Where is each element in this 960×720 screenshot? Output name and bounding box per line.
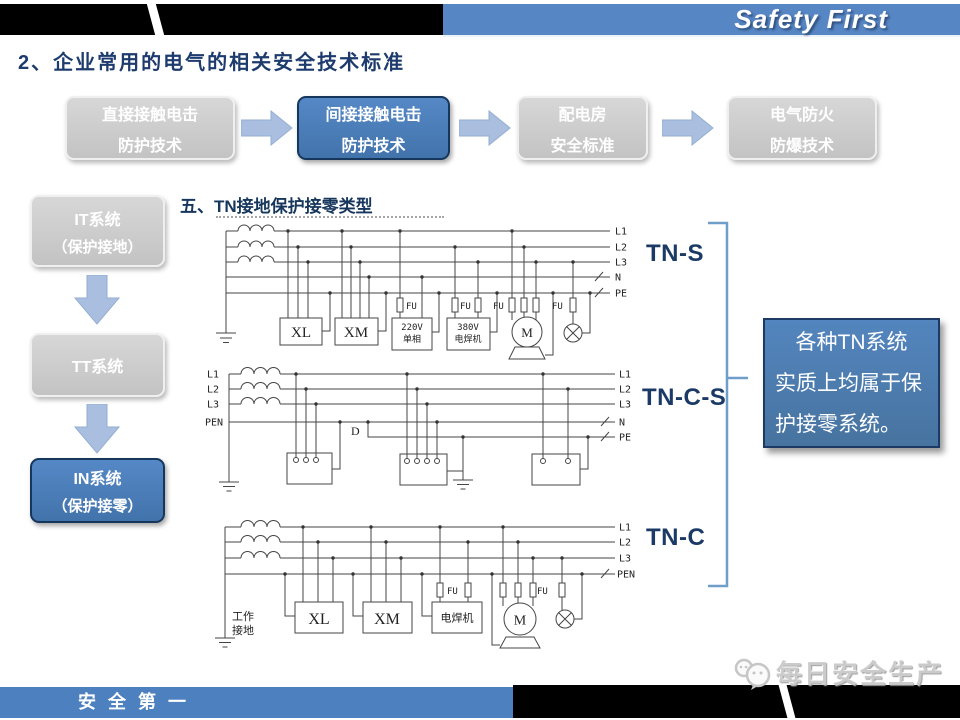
fuse-icon	[465, 583, 471, 597]
side-box-line: IT系统	[74, 206, 120, 230]
bus-label-l2-right: L2	[619, 385, 631, 396]
fuse-icon	[521, 298, 527, 312]
tns-labels: L1 L2 L3 N PE FU FU FU FU XL XM 220V 单相 …	[291, 227, 627, 346]
bus-label-pen-left: PEN	[205, 418, 223, 429]
footer-blue-bar: 安全第一	[0, 687, 513, 718]
bus-label-pe: PE	[615, 289, 627, 300]
tncs-wiring	[219, 368, 615, 492]
load-label-220v: 220V	[401, 323, 423, 333]
flow-box-line: 防爆技术	[770, 132, 834, 156]
side-box-line: （保护接零）	[52, 495, 142, 516]
tncs-labels: L1 L2 L3 PEN L1 L2 L3 N PE D	[205, 370, 631, 444]
ground-symbol	[216, 231, 236, 343]
load-label-220v-phase: 单相	[403, 333, 421, 345]
bus-label-l3: L3	[615, 258, 627, 269]
bus-label-l1: L1	[619, 523, 631, 534]
load-label-xm: XM	[344, 325, 368, 341]
flow-box-distribution-room: 配电房 安全标准	[517, 96, 648, 160]
flow-box-line: 安全标准	[550, 132, 614, 156]
pen-split-branch	[368, 422, 615, 437]
fuse-label: FU	[537, 587, 548, 597]
fuse-icon	[559, 583, 565, 597]
flow-box-line: 配电房	[558, 101, 606, 125]
bus-label-pen: PEN	[617, 570, 635, 581]
bus-label-l2: L2	[615, 243, 627, 254]
side-box-line: IN系统	[73, 465, 121, 489]
flow-box-line: 间接接触电击	[325, 101, 421, 125]
flow-arrow-down-icon	[74, 404, 120, 454]
tncs-junction-dots	[294, 372, 589, 438]
slide: Safety First 2、企业常用的电气的相关安全技术标准 直接接触电击 防…	[0, 0, 960, 720]
side-box-it-system: IT系统 （保护接地）	[30, 195, 165, 267]
callout-line: 实质上均属于保	[765, 363, 938, 404]
fuse-icon	[509, 298, 515, 312]
fuse-icon	[530, 583, 536, 597]
bus-label-n: N	[615, 273, 621, 284]
flow-box-line: 直接接触电击	[102, 101, 198, 125]
flow-box-indirect-contact-active: 间接接触电击 防护技术	[297, 96, 450, 160]
tnc-wiring	[215, 521, 615, 649]
bus-label-l1-right: L1	[619, 370, 631, 381]
flow-arrow-right-icon	[662, 110, 714, 146]
footer-slogan: 安全第一	[78, 687, 513, 718]
ground-symbol	[453, 480, 473, 489]
fuse-label: FU	[552, 302, 563, 312]
motor-pedestal	[509, 347, 545, 359]
load-label-380v-welder: 电焊机	[454, 333, 481, 345]
bus-label-l3-left: L3	[207, 400, 219, 411]
side-box-line: （保护接地）	[52, 236, 142, 257]
fuse-icon	[500, 583, 506, 597]
bus-label-l2: L2	[619, 538, 631, 549]
fuse-label: FU	[493, 302, 504, 312]
grouping-bracket	[703, 220, 753, 592]
flow-arrow-down-icon	[74, 275, 120, 325]
section-heading: 五、TN接地保护接零类型	[180, 192, 373, 217]
motor-pedestal	[500, 637, 540, 648]
watermark-logo-icon	[733, 656, 771, 690]
fuse-label: FU	[406, 302, 417, 312]
flow-box-line: 电气防火	[770, 101, 834, 125]
callout-line: 各种TN系统	[765, 322, 938, 363]
fuse-icon	[437, 583, 443, 597]
fuse-icon	[475, 298, 481, 312]
brand-title: Safety First	[443, 4, 960, 35]
flow-box-direct-contact: 直接接触电击 防护技术	[65, 96, 235, 160]
bus-label-l1-left: L1	[207, 370, 219, 381]
motor-label: M	[521, 325, 533, 340]
flow-box-line: 防护技术	[118, 132, 182, 156]
watermark: 每日安全生产	[733, 654, 944, 691]
load-label-xm: XM	[374, 611, 400, 628]
callout-line: 护接零系统。	[765, 404, 938, 445]
load-label-380v: 380V	[457, 323, 479, 333]
flow-box-fire-explosion: 电气防火 防爆技术	[727, 96, 877, 160]
watermark-text: 每日安全生产	[776, 654, 944, 691]
fuse-icon	[452, 298, 458, 312]
side-box-in-system-active: IN系统 （保护接零）	[30, 458, 165, 523]
flow-box-line: 防护技术	[341, 132, 405, 156]
tnc-circuit-diagram: L1 L2 L3 PEN FU FU XL XM 电焊机 M 工作 接地	[205, 507, 640, 662]
ground-symbol	[219, 374, 239, 491]
tnc-labels: L1 L2 L3 PEN FU FU XL XM 电焊机 M 工作 接地	[232, 523, 635, 638]
load-label-xl: XL	[291, 325, 311, 341]
bus-label-l3-right: L3	[619, 400, 631, 411]
system-label-tnc: TN-C	[646, 524, 705, 552]
fuse-icon	[570, 298, 576, 312]
fuse-label: FU	[460, 302, 471, 312]
split-point-label: D	[351, 424, 360, 438]
fuse-icon	[533, 298, 539, 312]
page-title: 2、企业常用的电气的相关安全技术标准	[18, 46, 405, 75]
load-label-xl: XL	[308, 611, 329, 628]
flow-arrow-right-icon	[459, 110, 511, 146]
system-label-tns: TN-S	[646, 240, 704, 268]
tncs-circuit-diagram: L1 L2 L3 PEN L1 L2 L3 N PE D	[205, 363, 640, 503]
header-black-bar	[0, 4, 443, 35]
side-box-tt-system: TT系统	[30, 333, 165, 397]
motor-label: M	[514, 614, 527, 629]
bus-label-l1: L1	[615, 227, 627, 238]
fuse-icon	[397, 298, 403, 312]
tnc-junction-dots	[283, 525, 583, 575]
side-box-line: TT系统	[72, 353, 124, 377]
dotted-rule	[216, 216, 444, 218]
tns-circuit-diagram: L1 L2 L3 N PE FU FU FU FU XL XM 220V 单相 …	[212, 220, 642, 363]
callout-box: 各种TN系统 实质上均属于保 护接零系统。	[763, 318, 940, 448]
working-ground-label-line1: 工作	[232, 610, 254, 623]
working-ground-label-line2: 接地	[232, 624, 254, 637]
load-label-welder: 电焊机	[441, 611, 474, 625]
bus-label-l2-left: L2	[207, 385, 219, 396]
bus-label-n-right: N	[619, 418, 625, 429]
fuse-label: FU	[447, 587, 458, 597]
flow-arrow-right-icon	[241, 110, 293, 146]
header-blue-bar: Safety First	[443, 4, 960, 37]
bus-label-pe-right: PE	[619, 433, 631, 444]
bus-label-l3: L3	[619, 554, 631, 565]
fuse-icon	[515, 583, 521, 597]
